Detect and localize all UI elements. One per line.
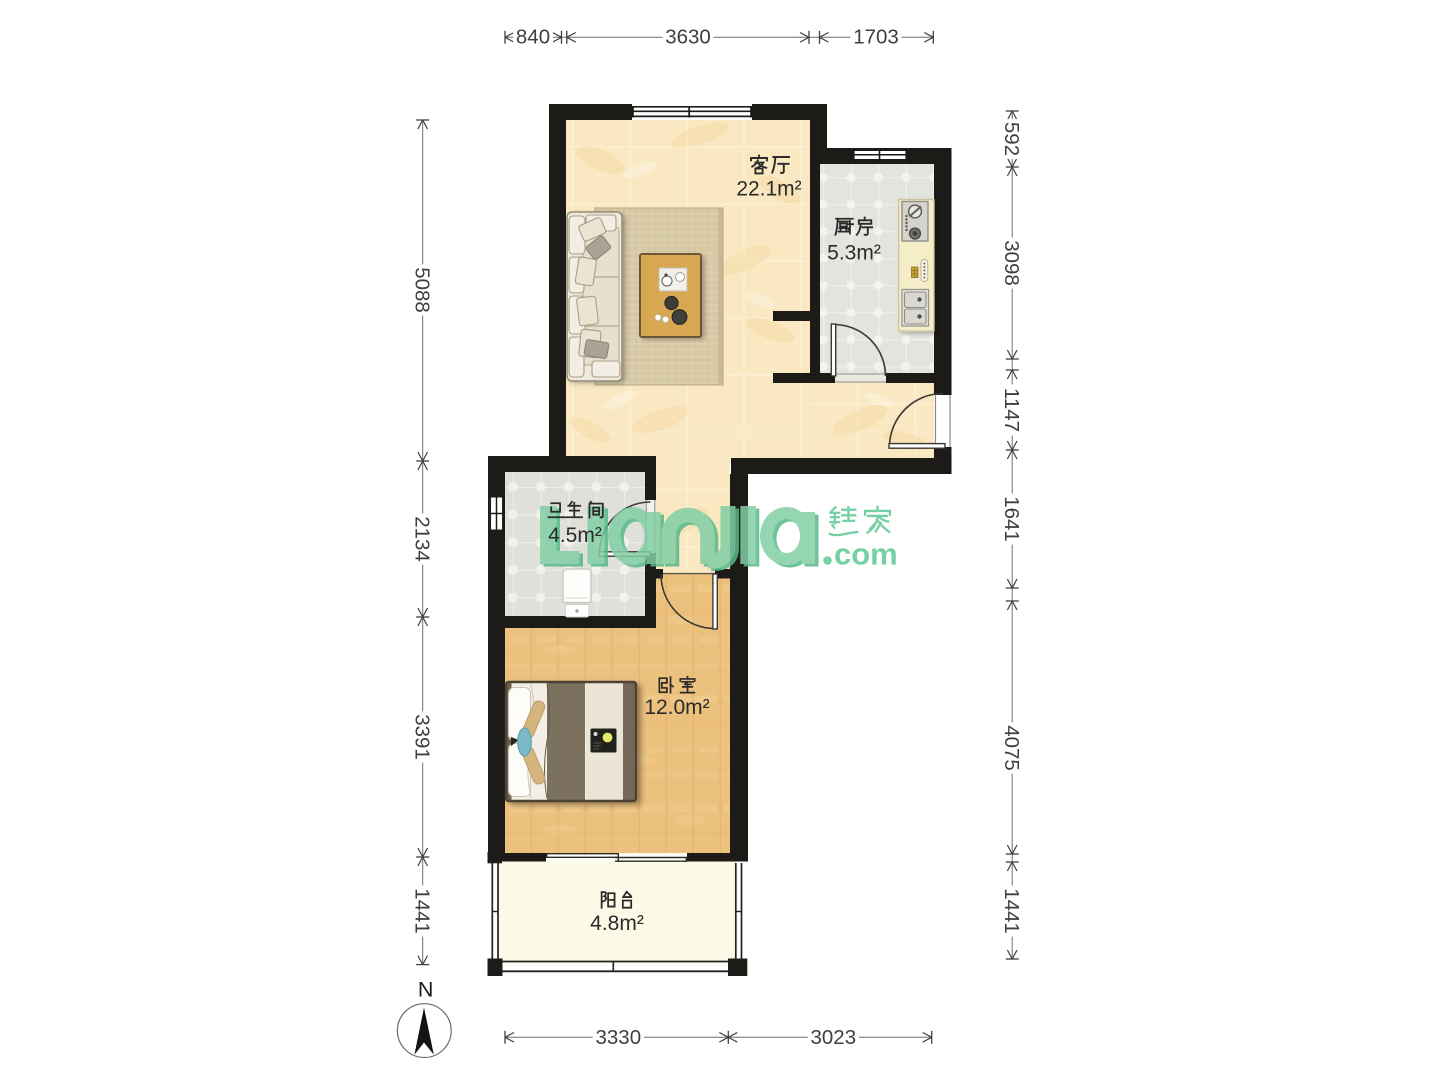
svg-text:3023: 3023 [810,1026,856,1049]
svg-text:N: N [418,978,434,1002]
svg-text:4.8m²: 4.8m² [590,912,644,935]
svg-text:1441: 1441 [411,888,434,934]
svg-text:3098: 3098 [1000,240,1023,286]
svg-text:592: 592 [1000,122,1023,156]
svg-text:5088: 5088 [411,267,434,313]
svg-text:2134: 2134 [411,516,434,562]
svg-text:3330: 3330 [595,1026,641,1049]
svg-text:840: 840 [516,26,550,49]
svg-text:1641: 1641 [1000,496,1023,542]
svg-text:5.3m²: 5.3m² [827,242,881,265]
svg-text:4075: 4075 [1000,725,1023,771]
svg-text:3391: 3391 [411,714,434,760]
svg-text:1703: 1703 [853,26,899,49]
svg-text:1441: 1441 [1000,888,1023,934]
svg-text:4.5m²: 4.5m² [548,524,602,547]
svg-text:12.0m²: 12.0m² [644,696,709,719]
svg-text:3630: 3630 [665,26,711,49]
svg-text:22.1m²: 22.1m² [736,178,801,201]
svg-text:com: com [834,537,898,572]
svg-text:1147: 1147 [1000,388,1023,432]
